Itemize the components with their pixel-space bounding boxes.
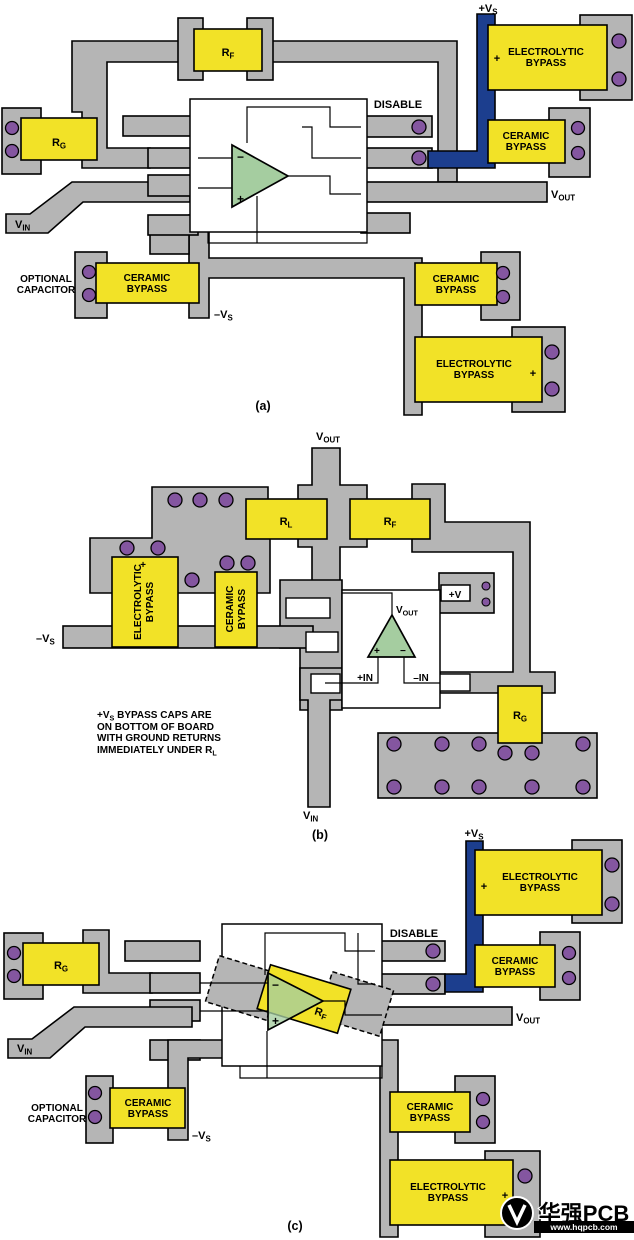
ic-pad-right-4 (361, 213, 410, 233)
minus-in-label: –IN (413, 673, 429, 684)
ceramic-bypass-label: BYPASS (128, 1109, 169, 1120)
optional-capacitor-label: OPTIONAL (31, 1103, 83, 1114)
via (435, 737, 449, 751)
disable-label: DISABLE (374, 99, 422, 111)
plus-vs-label: +VS (478, 3, 497, 17)
via (8, 970, 21, 983)
via (83, 266, 96, 279)
via (472, 780, 486, 794)
polarity-plus-sign: + (494, 53, 500, 65)
vout-trace (361, 182, 547, 202)
via (482, 582, 490, 590)
vout-label: VOUT (516, 1012, 540, 1026)
via (168, 493, 182, 507)
watermark: 华强PCB www.hqpcb.com (501, 1197, 634, 1233)
via (426, 977, 440, 991)
ceramic-bypass-cap (215, 572, 257, 647)
vin-label: VIN (303, 810, 319, 824)
via (545, 382, 559, 396)
vout-label: VOUT (316, 431, 340, 445)
via (605, 897, 619, 911)
optional-capacitor-label: CAPACITOR (17, 285, 76, 296)
note-line: +VS BYPASS CAPS ARE (97, 710, 212, 723)
panel-c: − + RF +VS DISABLE VOUT VIN RG –VS OPTIO… (4, 828, 622, 1237)
via (472, 737, 486, 751)
ceramic-bypass-label: CERAMIC (492, 956, 539, 967)
ceramic-bypass-label: BYPASS (410, 1113, 451, 1124)
electrolytic-bypass-label: BYPASS (520, 883, 561, 894)
figure-canvas: − + +VS DISABLE VOUT VIN RG RF –VS OPTIO… (0, 0, 634, 1240)
minus-vs-label: –VS (214, 309, 233, 323)
via (412, 151, 426, 165)
note-bypass-caps: +VS BYPASS CAPS ARE ON BOTTOM OF BOARD W… (97, 710, 221, 758)
ceramic-bypass-label: BYPASS (127, 284, 168, 295)
electrolytic-bypass-label: ELECTROLYTIC (508, 47, 584, 58)
opamp-minus-sign: − (272, 978, 279, 992)
via (219, 493, 233, 507)
via (563, 972, 576, 985)
pad-stub (150, 233, 189, 254)
ic-pad-left-2 (150, 973, 200, 993)
ceramic-bypass-label: BYPASS (436, 285, 477, 296)
vout-trace (382, 1007, 512, 1025)
ic-pad-left-1 (123, 116, 198, 136)
opamp-minus-sign: − (237, 150, 244, 164)
panel-a: − + +VS DISABLE VOUT VIN RG RF –VS OPTIO… (2, 3, 632, 415)
minus-vs-label: –VS (36, 633, 55, 647)
polarity-plus-sign: + (481, 881, 487, 893)
via (412, 120, 426, 134)
electrolytic-bypass-label: ELECTROLYTIC (133, 564, 144, 640)
electrolytic-bypass-label: ELECTROLYTIC (436, 359, 512, 370)
ceramic-bypass-label: CERAMIC (225, 586, 236, 633)
via (497, 291, 510, 304)
electrolytic-bypass-label: ELECTROLYTIC (502, 872, 578, 883)
opamp-plus-sign: + (237, 192, 244, 206)
via (387, 780, 401, 794)
via (220, 556, 234, 570)
via (572, 122, 585, 135)
wire-bottom-loop (240, 1066, 382, 1078)
polarity-plus-sign: + (530, 368, 536, 380)
panel-c-caption: (c) (287, 1219, 302, 1233)
pcb-layout-figure: − + +VS DISABLE VOUT VIN RG RF –VS OPTIO… (0, 0, 634, 1240)
ceramic-bypass-label: CERAMIC (124, 273, 171, 284)
via (83, 289, 96, 302)
via (6, 122, 19, 135)
panel-b: + − VOUT RL RF RG –VS +V VOUT +IN –IN EL… (36, 431, 597, 842)
via (612, 34, 626, 48)
opamp-plus-sign: + (374, 646, 380, 657)
vout-label: VOUT (551, 189, 575, 203)
note-line: ON BOTTOM OF BOARD (97, 722, 214, 733)
plus-in-label: +IN (357, 673, 373, 684)
opamp-ic-outline (190, 99, 367, 232)
via (482, 598, 490, 606)
via (612, 72, 626, 86)
via (8, 947, 21, 960)
via (576, 780, 590, 794)
via (435, 780, 449, 794)
via (563, 947, 576, 960)
ic-pad-left-1 (125, 941, 200, 961)
via (193, 493, 207, 507)
ground-plane-bottom (378, 733, 597, 798)
optional-capacitor-label: CAPACITOR (28, 1114, 87, 1125)
ceramic-bypass-label-rotated: CERAMIC BYPASS (225, 586, 248, 633)
ceramic-bypass-label: CERAMIC (503, 131, 550, 142)
via (518, 1169, 532, 1183)
plus-vs-label: +VS (464, 828, 483, 842)
via (576, 737, 590, 751)
via (426, 944, 440, 958)
ceramic-bypass-label: BYPASS (495, 967, 536, 978)
neg-vs-trace (63, 626, 313, 648)
via (120, 541, 134, 555)
via (6, 145, 19, 158)
via (497, 267, 510, 280)
via (89, 1087, 102, 1100)
ceramic-bypass-label: CERAMIC (407, 1102, 454, 1113)
via (89, 1111, 102, 1124)
electrolytic-bypass-label: BYPASS (526, 58, 567, 69)
watermark-url: www.hqpcb.com (549, 1222, 618, 1232)
ceramic-bypass-label: BYPASS (506, 142, 547, 153)
electrolytic-bypass-label: ELECTROLYTIC (410, 1182, 486, 1193)
vout-pad-slot (286, 598, 330, 618)
via (572, 147, 585, 160)
ceramic-bypass-label: BYPASS (237, 588, 248, 629)
via (387, 737, 401, 751)
opamp-plus-sign: + (272, 1014, 279, 1028)
ceramic-pad (86, 1076, 113, 1143)
polarity-plus-sign: + (140, 560, 146, 571)
via (498, 746, 512, 760)
panel-b-caption: (b) (312, 828, 328, 842)
electrolytic-bypass-label: BYPASS (428, 1193, 469, 1204)
wire-bottom-loop (208, 232, 367, 243)
mid-pad-slot (306, 632, 338, 652)
ceramic-bypass-label: CERAMIC (125, 1098, 172, 1109)
optional-capacitor-label: OPTIONAL (20, 274, 72, 285)
via (545, 345, 559, 359)
electrolytic-bypass-label: BYPASS (145, 581, 156, 622)
via (185, 573, 199, 587)
note-line: IMMEDIATELY UNDER RL (97, 745, 217, 758)
minus-vs-label: –VS (192, 1130, 211, 1144)
via (241, 556, 255, 570)
via (605, 858, 619, 872)
ceramic-bypass-label: CERAMIC (433, 274, 480, 285)
disable-label: DISABLE (390, 928, 438, 940)
via (477, 1093, 490, 1106)
note-line: WITH GROUND RETURNS (97, 733, 221, 744)
electrolytic-bypass-label: BYPASS (454, 370, 495, 381)
opamp-minus-sign: − (400, 646, 406, 657)
via (525, 746, 539, 760)
panel-a-caption: (a) (255, 399, 270, 413)
via (477, 1116, 490, 1129)
via (525, 780, 539, 794)
via (151, 541, 165, 555)
plus-v-label: +V (449, 590, 462, 601)
